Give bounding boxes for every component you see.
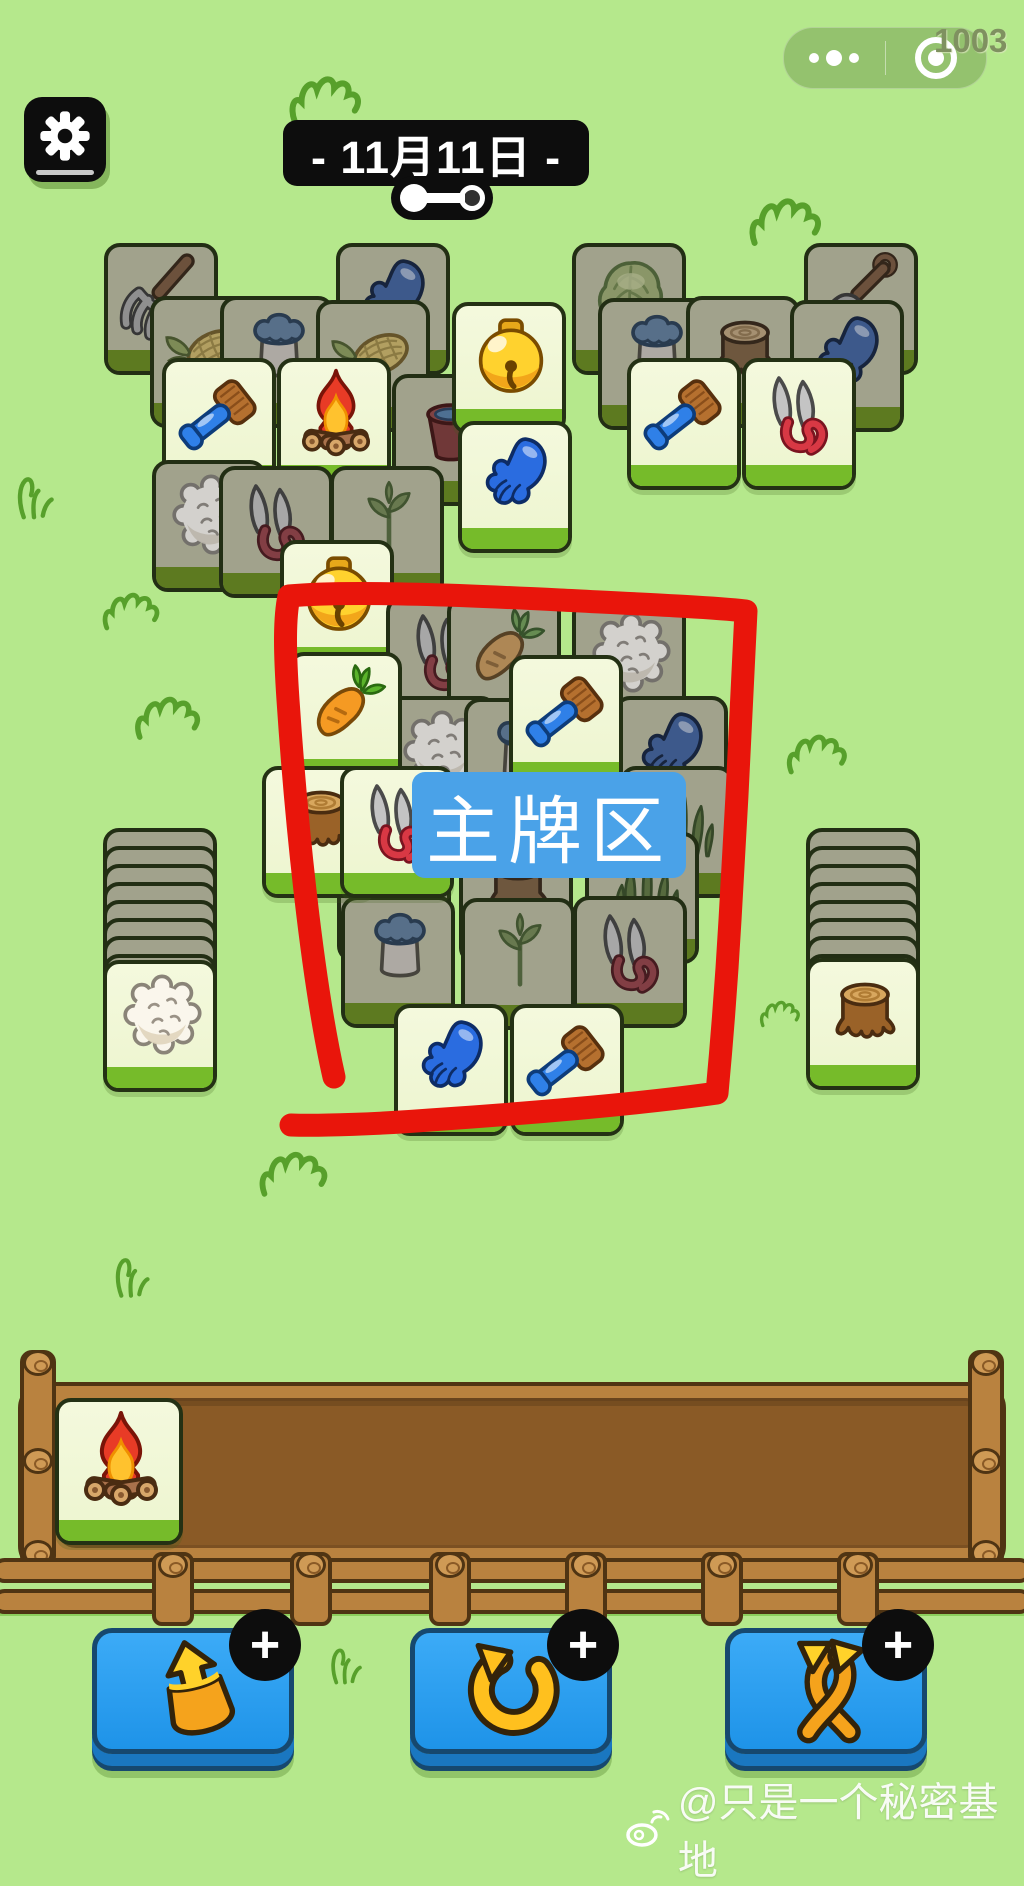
fire-icon [71,1409,171,1509]
dot-icon [826,50,842,66]
brush-icon [640,367,732,459]
fence-leg [968,1350,1004,1568]
tile-brush[interactable] [510,1004,624,1136]
plus-badge[interactable]: + [862,1609,934,1681]
tile-bell[interactable] [452,302,566,434]
gear-icon [37,108,93,164]
settings-button[interactable] [24,97,106,182]
toggle-ring-icon [459,185,485,211]
bell-icon [465,311,557,403]
tile-glove[interactable] [458,421,572,553]
tile-wool[interactable] [103,960,217,1092]
move-out-button[interactable]: + [92,1628,294,1754]
grass-sprout-icon [326,1634,364,1690]
main-zone-label: 主牌区 [412,772,686,878]
grass-tuft-icon [758,998,806,1032]
grass-sprout-icon [110,1242,152,1304]
plus-badge[interactable]: + [229,1609,301,1681]
stump-icon [819,967,911,1059]
bell-icon [293,549,385,641]
tile-tray-slot-area [56,1398,986,1548]
grass-tuft-icon [132,694,210,746]
fence-post [429,1552,471,1626]
level-toggle[interactable] [391,176,493,220]
shuffle-button[interactable]: + [725,1628,927,1754]
plant-icon [474,907,566,999]
fence-post [152,1552,194,1626]
tile-stump[interactable] [806,958,920,1090]
carrot-icon [301,661,393,753]
fire-icon [290,367,382,459]
weibo-icon [622,1802,672,1854]
wool-icon [116,969,208,1061]
tile-glove[interactable] [394,1004,508,1136]
tile-carrot[interactable] [288,652,402,784]
brush-icon [175,367,267,459]
grass-tuft-icon [256,1150,338,1202]
more-menu-button[interactable] [784,50,885,66]
fence-post [837,1552,879,1626]
grass-tuft-icon [784,732,856,780]
dot-icon [809,53,819,63]
shears-icon [586,905,678,997]
plus-badge[interactable]: + [547,1609,619,1681]
corner-badge: 1003 [934,22,1007,60]
tile-shears[interactable] [742,358,856,490]
undo-button[interactable]: + [410,1628,612,1754]
brush-icon [523,1013,615,1105]
tile-brush[interactable] [627,358,741,490]
dot-icon [849,53,859,63]
brush-icon [522,664,614,756]
fence-post [290,1552,332,1626]
glove-icon [407,1013,499,1105]
watermark: @只是一个秘密基地 [622,1770,1024,1886]
fence-post [701,1552,743,1626]
glove-icon [471,430,563,522]
grass-sprout-icon [12,460,56,526]
watermark-text: @只是一个秘密基地 [678,1770,1024,1886]
tile-fire[interactable] [55,1398,183,1545]
fence-leg [20,1350,56,1568]
shears-icon [755,367,847,459]
milkcan-icon [354,905,446,997]
grass-tuft-icon [100,590,168,636]
tile-brush[interactable] [509,655,623,787]
